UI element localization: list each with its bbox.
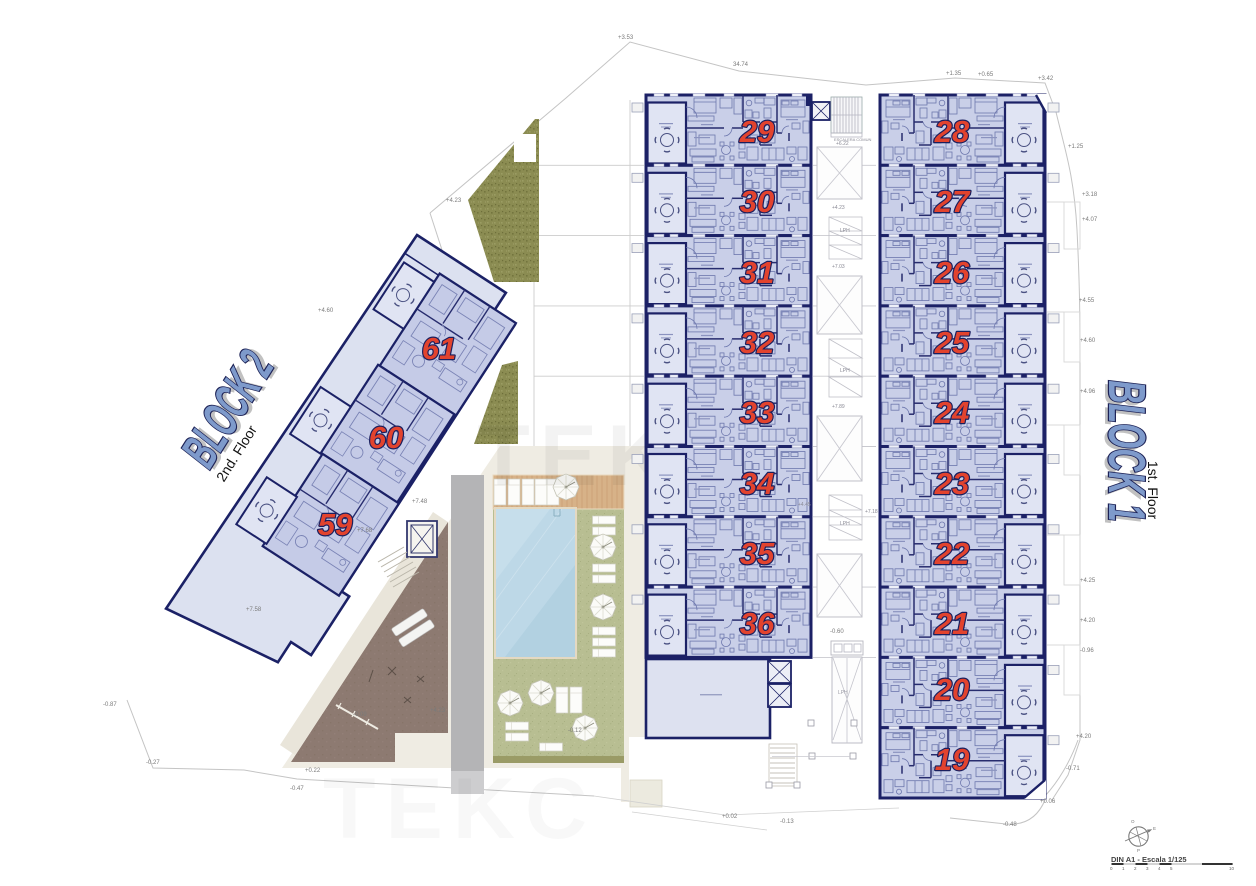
svg-text:32: 32	[740, 325, 774, 360]
svg-text:+4.45: +4.45	[798, 502, 811, 508]
svg-text:E: E	[1153, 826, 1156, 831]
svg-text:-0.71: -0.71	[1066, 766, 1080, 772]
svg-text:30: 30	[740, 184, 774, 219]
svg-text:+4.25: +4.25	[1080, 578, 1096, 584]
svg-text:+0.02: +0.02	[722, 814, 738, 820]
svg-text:+4.20: +4.20	[1080, 618, 1096, 624]
svg-text:LPH: LPH	[840, 521, 850, 527]
svg-text:-0.09: -0.09	[353, 712, 367, 718]
svg-text:-0.96: -0.96	[1080, 648, 1094, 654]
svg-text:-0.13: -0.13	[780, 819, 794, 825]
svg-text:24: 24	[934, 395, 969, 430]
svg-text:20: 20	[934, 672, 969, 707]
svg-text:+3.42: +3.42	[1038, 76, 1054, 82]
svg-text:21: 21	[934, 606, 969, 641]
svg-text:+0.22: +0.22	[305, 768, 321, 774]
svg-text:+4.60: +4.60	[1080, 338, 1096, 344]
svg-text:+6.22: +6.22	[836, 141, 849, 147]
svg-text:36: 36	[740, 606, 775, 641]
svg-text:34.74: 34.74	[733, 62, 749, 68]
svg-text:+7.89: +7.89	[832, 404, 845, 410]
svg-text:+4.23: +4.23	[430, 708, 446, 714]
svg-text:-0.27: -0.27	[146, 760, 160, 766]
svg-text:+7.03: +7.03	[832, 264, 845, 270]
svg-text:LPH: LPH	[838, 690, 848, 696]
svg-text:61: 61	[422, 331, 456, 366]
svg-text:O: O	[1131, 819, 1135, 824]
svg-text:19: 19	[935, 742, 970, 777]
svg-text:22: 22	[934, 536, 969, 571]
svg-text:1st. Floor: 1st. Floor	[1145, 461, 1161, 520]
svg-text:+4.60: +4.60	[318, 308, 334, 314]
svg-text:34: 34	[740, 466, 774, 501]
svg-text:10: 10	[1229, 866, 1235, 871]
svg-text:+0.65: +0.65	[978, 72, 994, 78]
svg-text:23: 23	[934, 466, 969, 501]
svg-text:LPH: LPH	[840, 368, 850, 374]
svg-text:+4.20: +4.20	[1076, 734, 1092, 740]
svg-text:+7.48: +7.48	[412, 499, 428, 505]
svg-text:35: 35	[740, 536, 775, 571]
svg-text:25: 25	[934, 325, 970, 360]
svg-text:+4.55: +4.55	[1079, 298, 1095, 304]
svg-text:P: P	[1137, 848, 1140, 853]
svg-text:TEKC: TEKC	[323, 761, 597, 857]
svg-text:31: 31	[740, 255, 774, 290]
svg-text:LPH: LPH	[840, 228, 850, 234]
svg-text:+1.35: +1.35	[946, 71, 962, 77]
svg-text:-0.12: -0.12	[568, 728, 582, 734]
svg-text:+7.18: +7.18	[865, 509, 878, 515]
svg-text:-0.87: -0.87	[103, 702, 117, 708]
svg-text:+4.07: +4.07	[1082, 217, 1098, 223]
svg-text:26: 26	[934, 255, 970, 290]
svg-text:+3.18: +3.18	[1082, 192, 1098, 198]
svg-text:59: 59	[318, 507, 353, 542]
svg-text:-0.60: -0.60	[830, 629, 844, 635]
svg-text:DIN A1 - Escala 1/125: DIN A1 - Escala 1/125	[1111, 855, 1187, 864]
svg-text:33: 33	[740, 395, 774, 430]
svg-text:+7.68: +7.68	[357, 528, 373, 534]
svg-text:-0.47: -0.47	[290, 786, 304, 792]
svg-text:-0.48: -0.48	[1003, 822, 1017, 828]
svg-text:+4.23: +4.23	[446, 198, 462, 204]
svg-text:+1.25: +1.25	[1068, 144, 1084, 150]
svg-text:29: 29	[739, 114, 775, 149]
svg-text:28: 28	[934, 114, 970, 149]
svg-text:60: 60	[369, 420, 403, 455]
svg-text:27: 27	[934, 184, 971, 219]
svg-text:+0.06: +0.06	[1040, 799, 1056, 805]
svg-text:+4.23: +4.23	[832, 205, 845, 211]
svg-text:+7.58: +7.58	[246, 607, 262, 613]
svg-text:+3.53: +3.53	[618, 35, 634, 41]
